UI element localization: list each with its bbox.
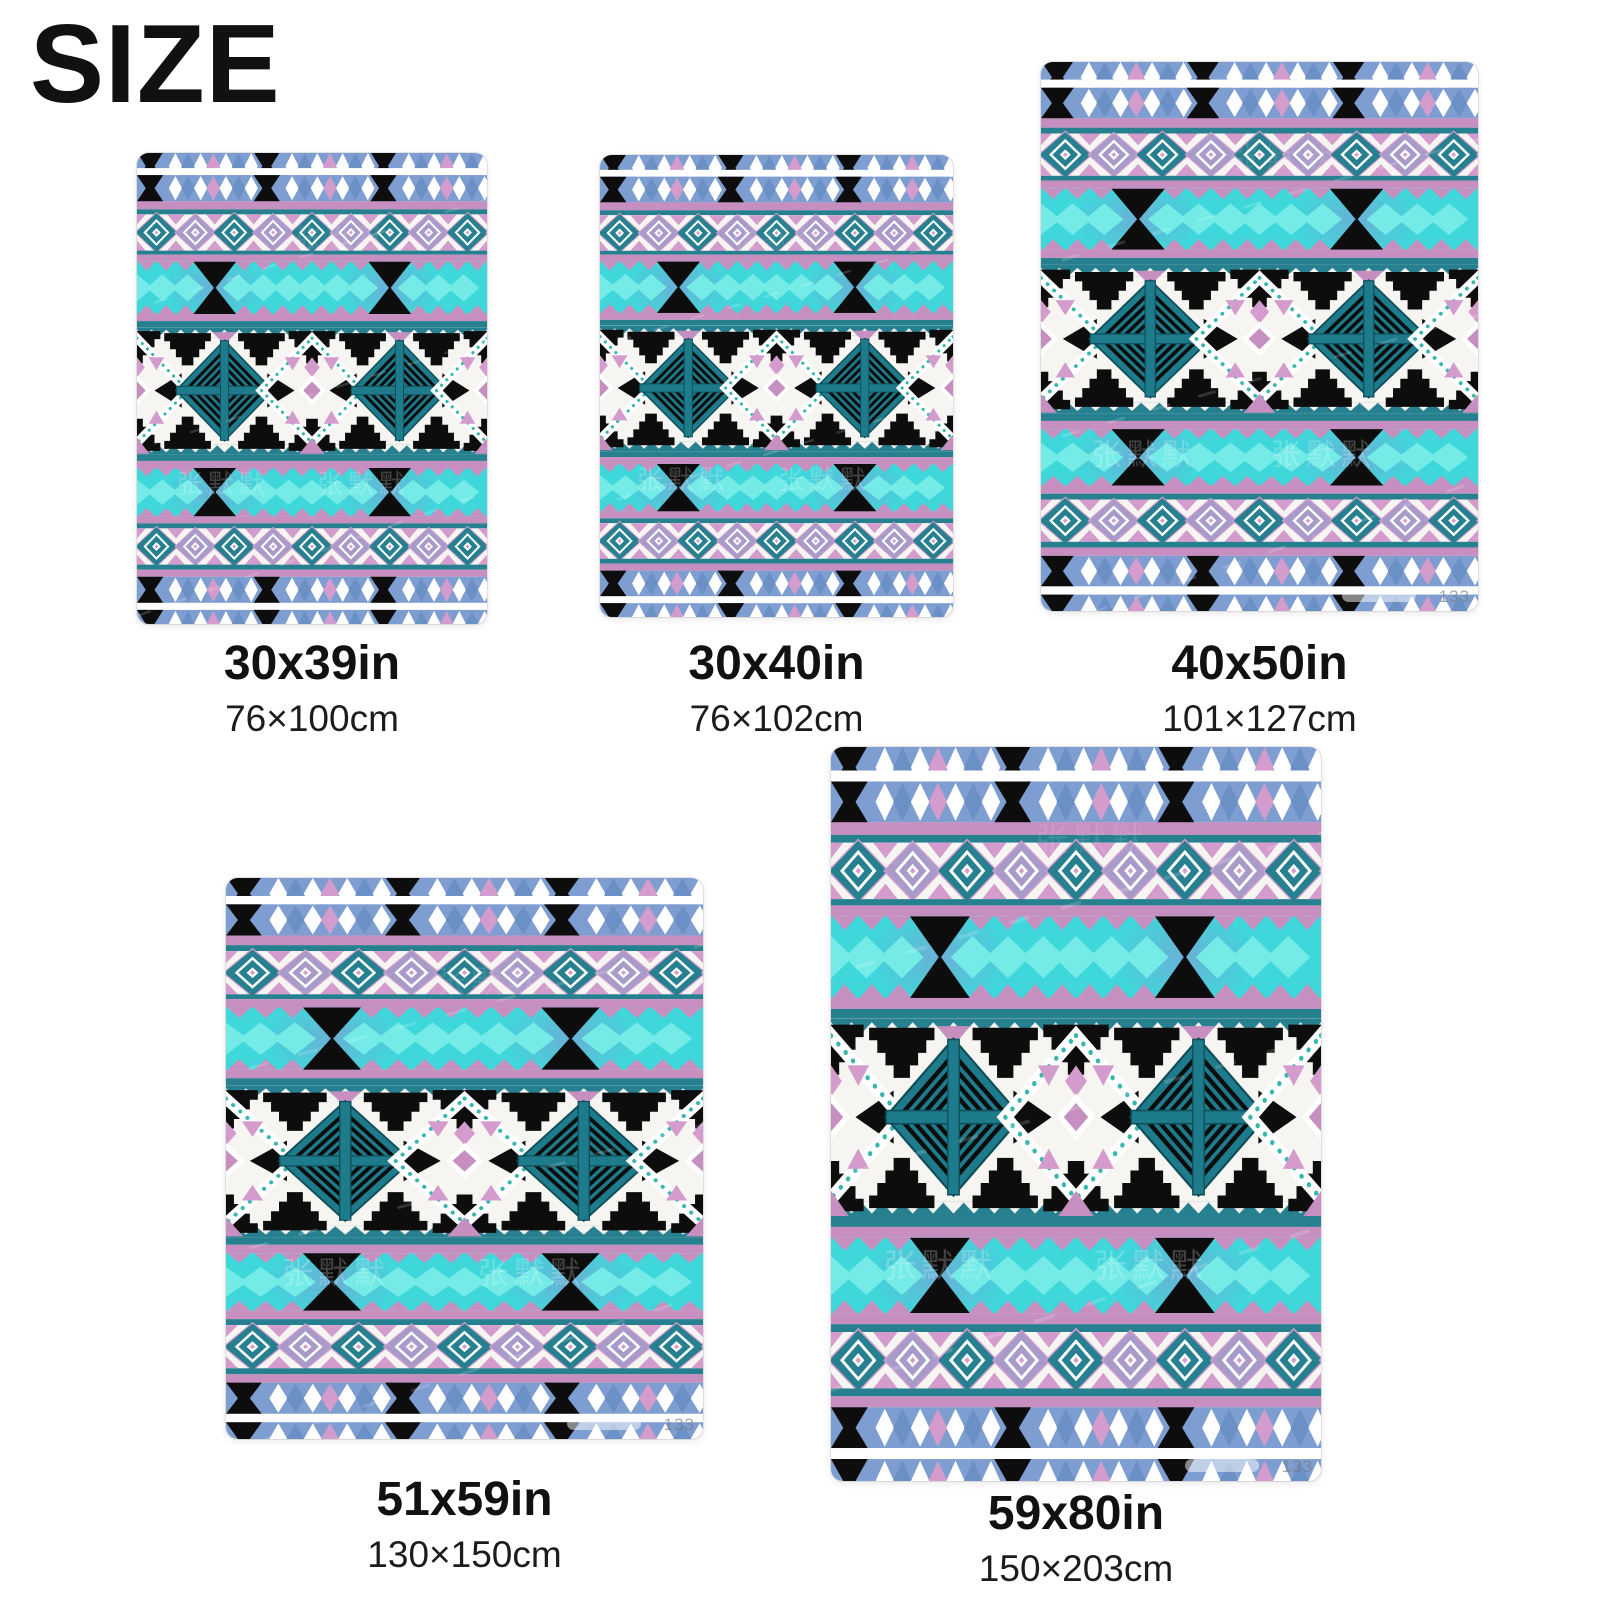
- size-label: 59x80in 150×203cm: [831, 1488, 1321, 1590]
- size-chart-canvas: SIZE: [0, 0, 1600, 1600]
- swatch-51x59in: 张默默 张默默 张默默 133: [226, 878, 703, 1439]
- swatch-40x50in: 张默默 张默默 张默默 133: [1041, 62, 1478, 611]
- artist-watermark: 张默默: [317, 464, 410, 501]
- stock-id-watermark: 133: [664, 1415, 695, 1435]
- swatch-30x40in: 张默默 张默默 张默默: [600, 155, 953, 617]
- size-label: 30x40in 76×102cm: [600, 638, 953, 740]
- size-cm: 130×150cm: [226, 1534, 703, 1576]
- page-title: SIZE: [30, 6, 281, 123]
- size-inches: 59x80in: [831, 1488, 1321, 1540]
- artist-watermark: 张默默: [1094, 1239, 1208, 1287]
- size-cm: 150×203cm: [831, 1548, 1321, 1590]
- size-label: 40x50in 101×127cm: [1041, 638, 1478, 740]
- size-inches: 30x39in: [137, 638, 487, 690]
- artist-watermark: 张默默: [296, 219, 389, 256]
- watermark-pill: [1342, 589, 1416, 602]
- artist-watermark: 张默默: [637, 460, 730, 497]
- artist-watermark: 张默默: [1271, 430, 1376, 474]
- artist-watermark: 张默默: [1092, 430, 1197, 474]
- watermark-pill: [567, 1417, 641, 1430]
- size-inches: 40x50in: [1041, 638, 1478, 690]
- size-label: 51x59in 130×150cm: [226, 1474, 703, 1576]
- size-cm: 101×127cm: [1041, 698, 1478, 740]
- swatch-59x80in: 张默默 张默默 张默默 133: [831, 747, 1321, 1481]
- size-cm: 76×100cm: [137, 698, 487, 740]
- artist-watermark: 张默默: [435, 957, 543, 1002]
- artist-watermark: 张默默: [478, 1248, 586, 1293]
- artist-watermark: 张默默: [1035, 813, 1149, 861]
- stock-id-watermark: 133: [1439, 587, 1470, 607]
- watermark-pill: [1185, 1459, 1259, 1472]
- artist-watermark: 张默默: [177, 464, 270, 501]
- size-inches: 30x40in: [600, 638, 953, 690]
- artist-watermark: 张默默: [778, 460, 871, 497]
- size-inches: 51x59in: [226, 1474, 703, 1526]
- size-cm: 76×102cm: [600, 698, 953, 740]
- artist-watermark: 张默默: [282, 1248, 390, 1293]
- artist-watermark: 张默默: [883, 1239, 997, 1287]
- artist-watermark: 张默默: [732, 220, 825, 257]
- stock-id-watermark: 133: [1282, 1457, 1313, 1477]
- swatch-30x39in: 张默默 张默默 张默默: [137, 153, 487, 624]
- size-label: 30x39in 76×100cm: [137, 638, 487, 740]
- artist-watermark: 张默默: [1232, 133, 1337, 177]
